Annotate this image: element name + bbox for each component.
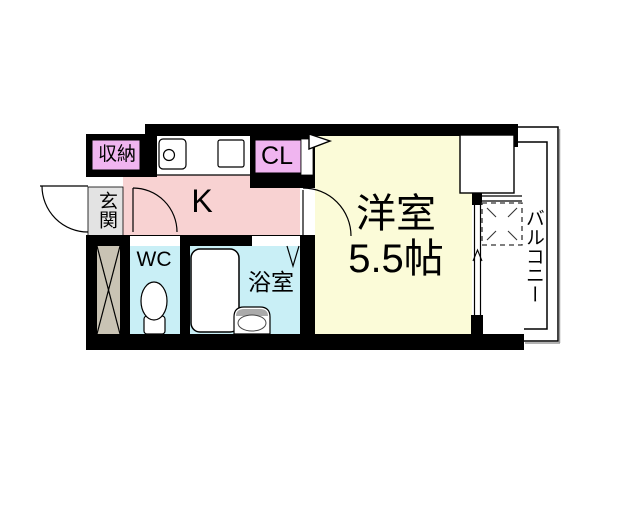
kitchen-faucet-icon <box>164 150 175 161</box>
washbasin-bowl <box>238 315 266 331</box>
wall-bath-westernroom <box>300 246 315 334</box>
stove-icon <box>218 140 244 167</box>
entrance-label: 玄関 <box>96 191 116 229</box>
storage-label: 収納 <box>98 145 136 165</box>
toilet-door-opening <box>130 236 180 246</box>
balcony-label: バルコニー <box>520 209 546 304</box>
closet-label: CL <box>261 143 293 169</box>
window-top-block <box>472 193 482 205</box>
floorplan: 収納 玄関 K CL 洋室 5.5帖 WC 浴室 バルコニー <box>0 0 640 512</box>
wall-ps-wc <box>120 246 130 334</box>
western-room-size: 5.5帖 <box>348 237 444 282</box>
toilet-icon <box>141 282 167 320</box>
washing-machine-corner-mark <box>508 208 517 217</box>
wall-bottom <box>86 334 524 350</box>
western-room-label: 洋室 5.5帖 <box>348 192 444 282</box>
western-room-name: 洋室 <box>348 192 444 237</box>
wall-top <box>145 124 518 136</box>
toilet-label: WC <box>137 249 172 271</box>
bathroom-label: 浴室 <box>248 270 294 294</box>
washing-machine-corner-mark <box>508 231 517 240</box>
entrance-door-arc <box>42 186 88 232</box>
wall-wc-bath <box>180 246 190 334</box>
window-bottom-block <box>471 315 483 334</box>
kitchen-label: K <box>191 185 212 219</box>
washing-machine-corner-mark <box>487 231 496 240</box>
corner-storage-box <box>460 135 514 193</box>
bathtub-icon <box>191 249 239 332</box>
washing-machine-corner-mark <box>487 208 496 217</box>
wall-kitchen-west <box>145 124 157 177</box>
wall-west <box>86 235 97 350</box>
bathroom-door-opening <box>252 236 300 246</box>
